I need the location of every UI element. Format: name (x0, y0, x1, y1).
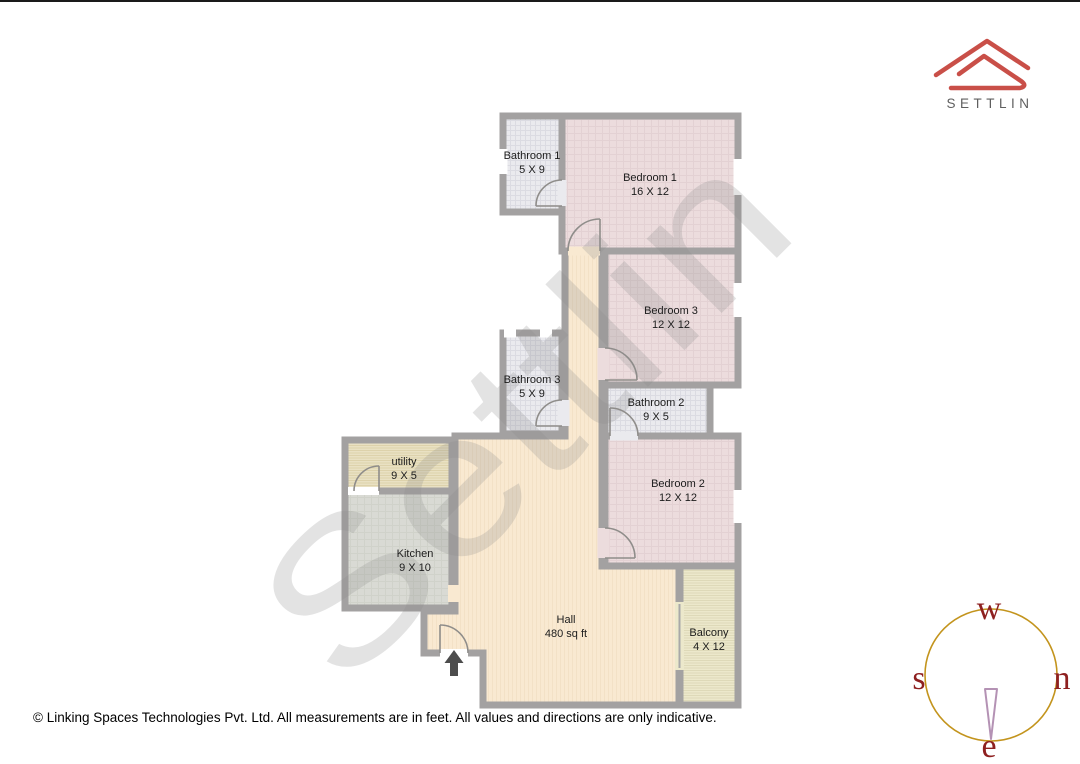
label-bathroom-2-name: Bathroom 2 (628, 397, 685, 409)
label-kitchen-name: Kitchen (397, 548, 434, 560)
label-bathroom-2-dims: 9 X 5 (643, 411, 669, 423)
label-bathroom-3-dims: 5 X 9 (519, 388, 545, 400)
compass-west: w (977, 590, 1002, 627)
label-utility-dims: 9 X 5 (391, 470, 417, 482)
label-bedroom-2-name: Bedroom 2 (651, 478, 705, 490)
copyright-text: © Linking Spaces Technologies Pvt. Ltd. … (33, 710, 717, 725)
label-bedroom-3-dims: 12 X 12 (652, 319, 690, 331)
label-hall-dims: 480 sq ft (545, 628, 587, 640)
compass-east: e (981, 728, 996, 764)
window-bedroom-2 (734, 490, 743, 523)
label-bathroom-1-name: Bathroom 1 (504, 150, 561, 162)
label-balcony-name: Balcony (689, 627, 729, 639)
floorplan-canvas: Settlin Bathroom 1 5 X 9 Bedroom 1 16 X … (0, 0, 1080, 764)
compass-north: n (1054, 660, 1071, 697)
label-bedroom-3-name: Bedroom 3 (644, 305, 698, 317)
compass-south: s (912, 660, 925, 697)
label-bedroom-1-dims: 16 X 12 (631, 186, 669, 198)
brand-name: SETTLIN (946, 96, 1033, 111)
label-bathroom-1-dims: 5 X 9 (519, 164, 545, 176)
doorway-bathroom-1 (558, 180, 567, 206)
label-hall-name: Hall (557, 614, 576, 626)
compass-rose: w s n e (912, 590, 1070, 764)
label-bedroom-2-dims: 12 X 12 (659, 492, 697, 504)
doorway-bedroom-2 (598, 528, 610, 558)
label-kitchen-dims: 9 X 10 (399, 562, 431, 574)
brand-logo: SETTLIN (936, 41, 1034, 111)
top-border (0, 0, 1080, 2)
label-utility-name: utility (391, 456, 417, 468)
floorplan-page: Settlin Bathroom 1 5 X 9 Bedroom 1 16 X … (0, 0, 1080, 764)
label-balcony-dims: 4 X 12 (693, 641, 725, 653)
label-bathroom-3-name: Bathroom 3 (504, 374, 561, 386)
label-bedroom-1-name: Bedroom 1 (623, 172, 677, 184)
